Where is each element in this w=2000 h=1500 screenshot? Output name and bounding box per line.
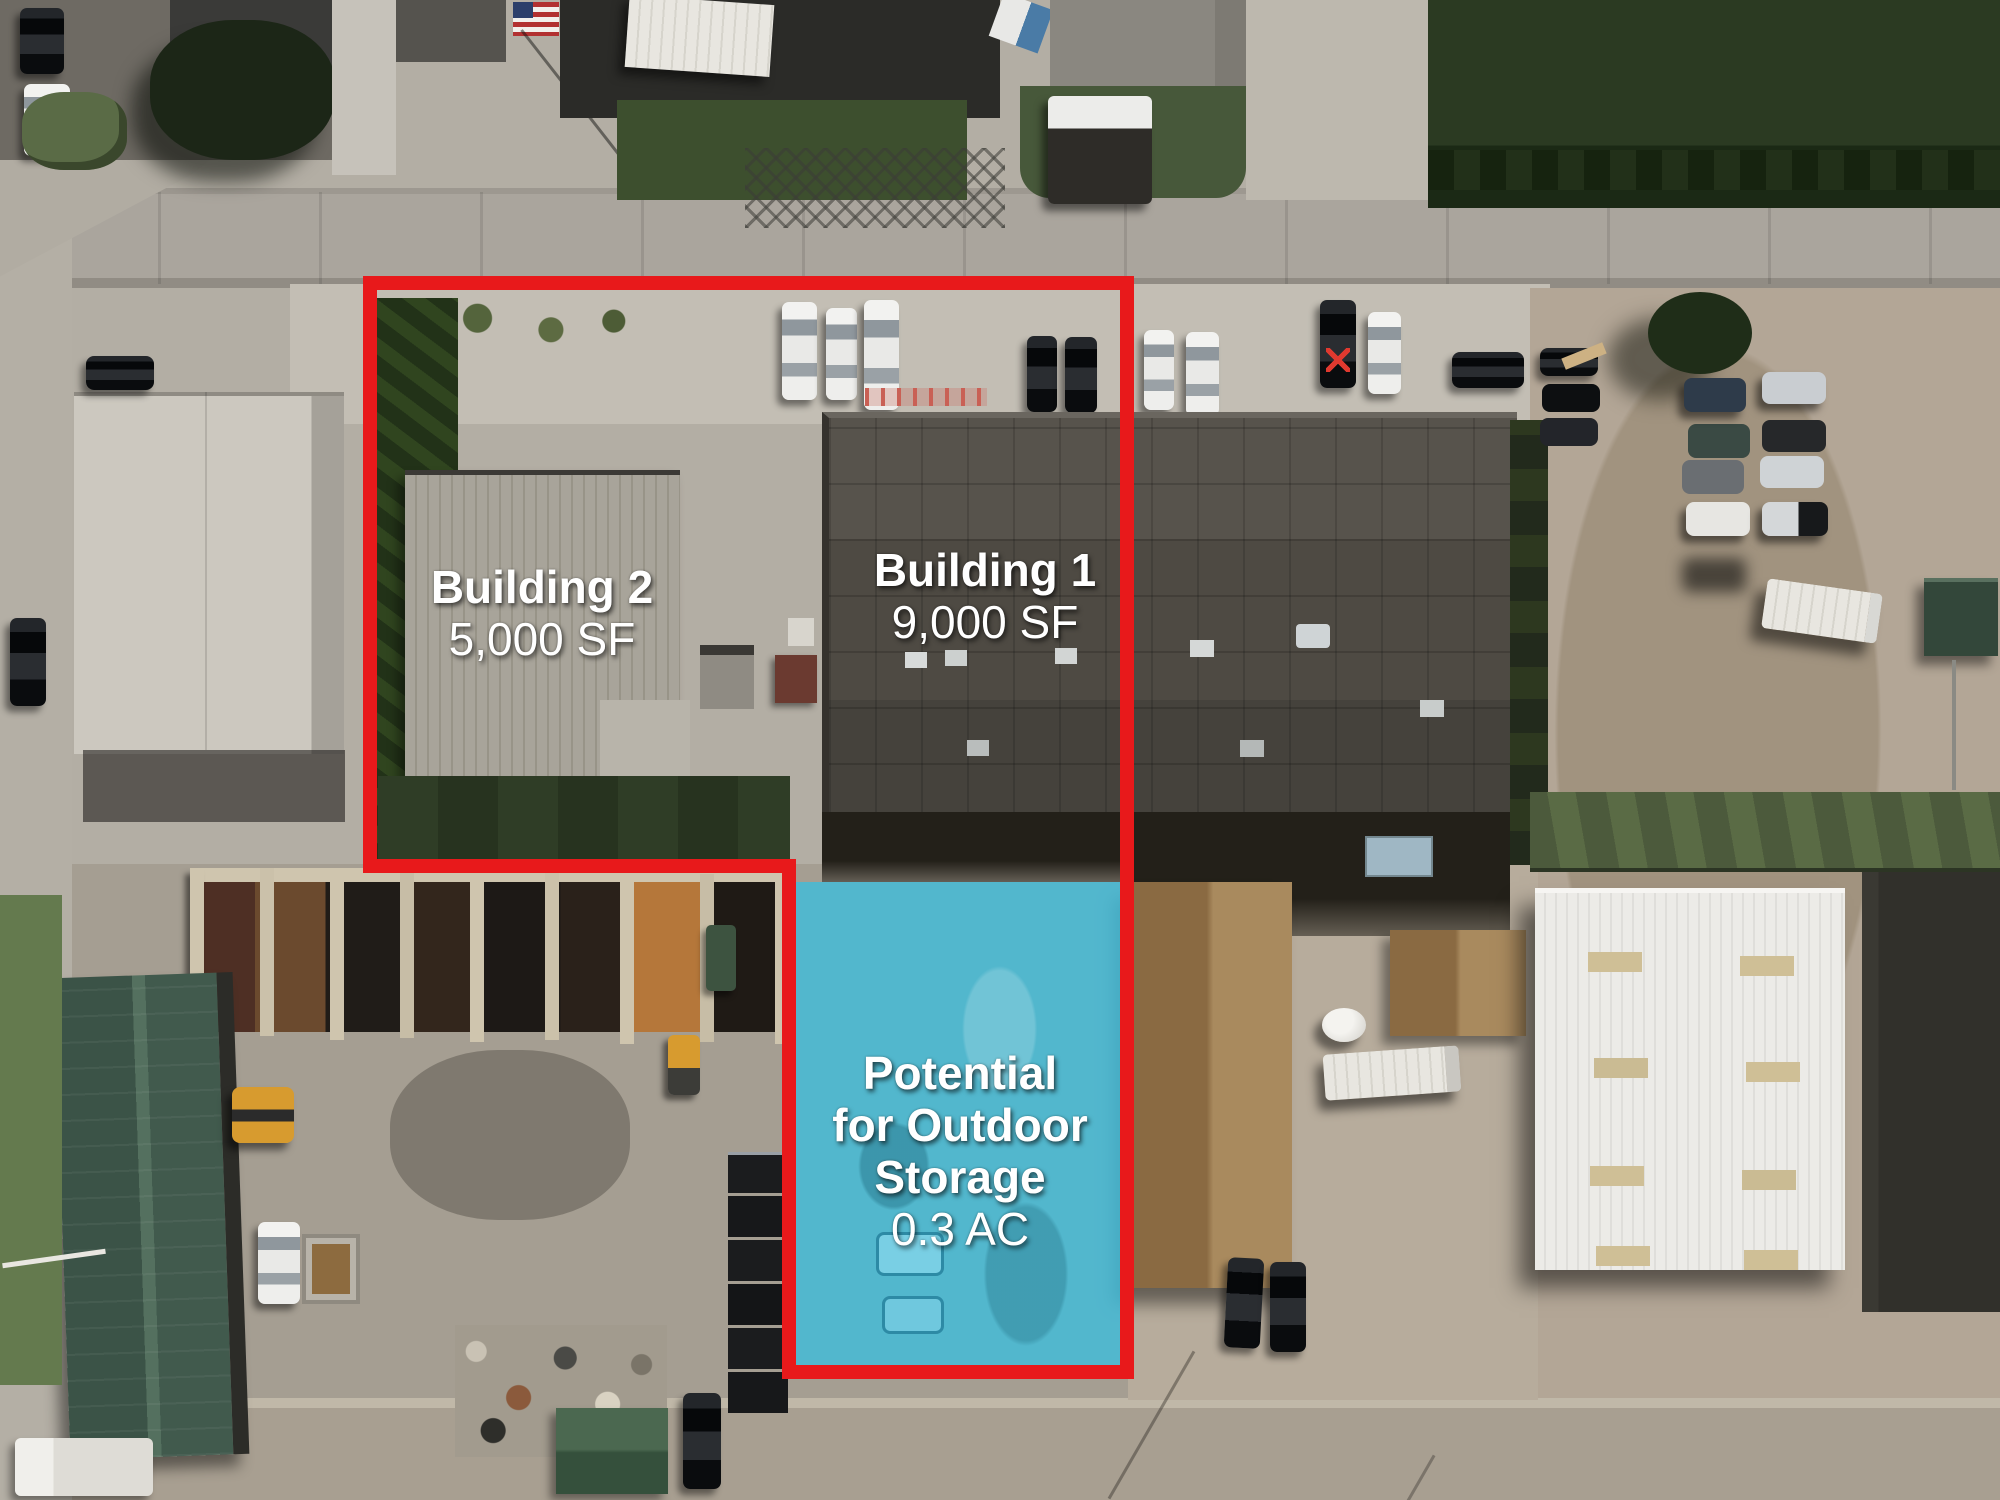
storage-line1: Potential [810,1048,1110,1100]
storage-line2: for Outdoor [810,1100,1110,1152]
property-boundary [0,0,2000,1500]
storage-line3: Storage [810,1152,1110,1204]
building-2-size: 5,000 SF [392,614,692,666]
building-1-name: Building 1 [835,545,1135,597]
building-2-label: Building 2 5,000 SF [392,562,692,666]
storage-label: Potential for Outdoor Storage 0.3 AC [810,1048,1110,1256]
building-2-name: Building 2 [392,562,692,614]
storage-size: 0.3 AC [810,1204,1110,1256]
building-1-size: 9,000 SF [835,597,1135,649]
aerial-photo: Building 2 5,000 SF Building 1 9,000 SF … [0,0,2000,1500]
building-1-label: Building 1 9,000 SF [835,545,1135,649]
